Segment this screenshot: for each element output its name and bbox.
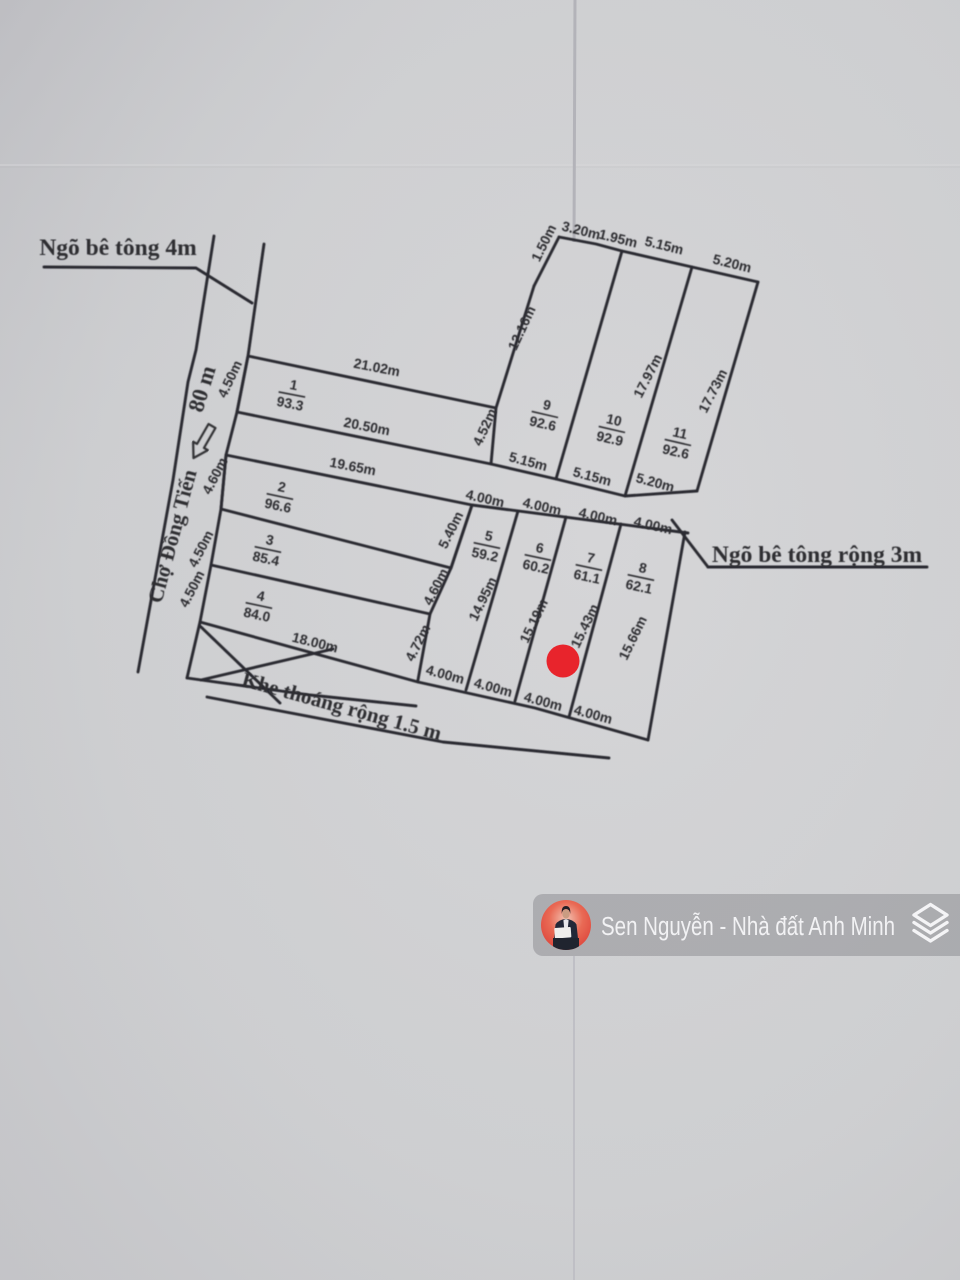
svg-text:Sen Nguyễn - Nhà đất Anh Minh: Sen Nguyễn - Nhà đất Anh Minh	[601, 912, 895, 941]
svg-text:Ngõ bê tông 4m: Ngõ bê tông 4m	[39, 235, 197, 261]
svg-text:Ngõ bê tông rộng 3m: Ngõ bê tông rộng 3m	[712, 542, 923, 568]
